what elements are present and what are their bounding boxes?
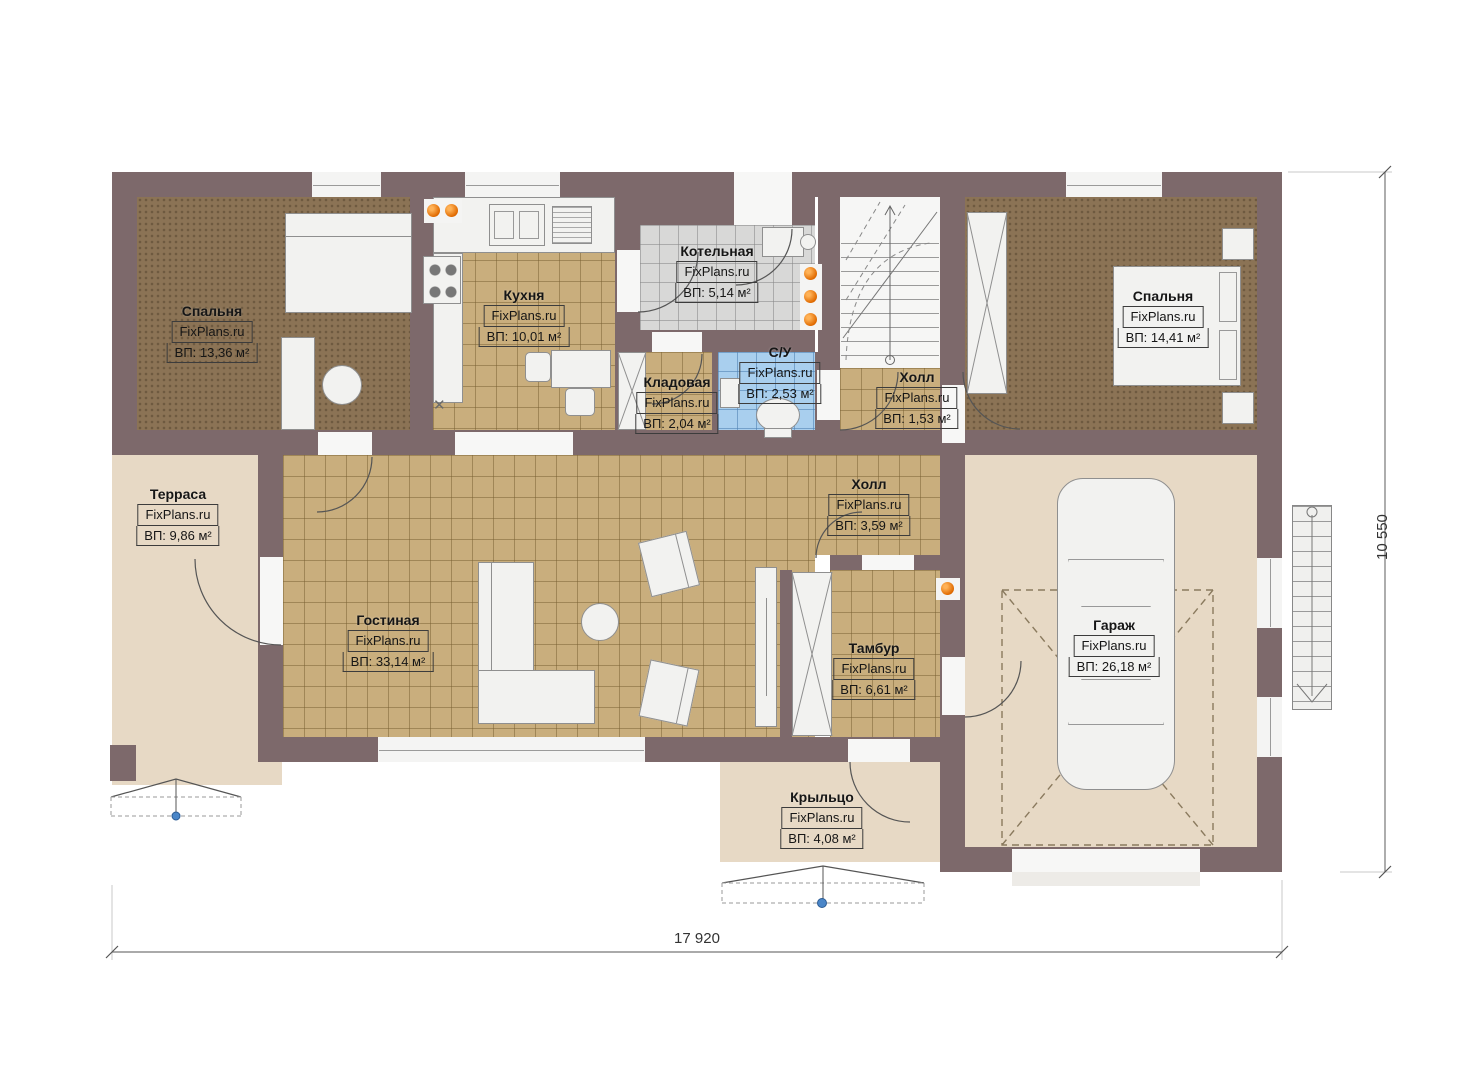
door-kitchen-boiler: [617, 250, 640, 312]
watermark: FixPlans.ru: [781, 807, 862, 829]
room-name: Холл: [899, 369, 934, 385]
room-area: ВП: 26,18 м²: [1069, 657, 1160, 678]
watermark: FixPlans.ru: [833, 658, 914, 680]
wall-vestibule-left: [780, 570, 792, 737]
window-living-bottom: [378, 737, 645, 762]
garage-apron: [1012, 872, 1200, 886]
floor-plan: ✕: [0, 0, 1474, 1080]
window-bedroom-right-top: [1066, 172, 1162, 197]
room-label-terrace: Терраса FixPlans.ru ВП: 9,86 м²: [136, 486, 219, 546]
room-area: ВП: 14,41 м²: [1118, 328, 1209, 349]
watermark: FixPlans.ru: [636, 392, 717, 414]
sofa-chaise: [478, 670, 595, 724]
window-garage-right-1: [1257, 558, 1282, 628]
car-windshield: [1068, 559, 1164, 607]
window-garage-right-2: [1257, 697, 1282, 757]
room-name: Котельная: [680, 243, 753, 259]
radiator-icon: [800, 264, 822, 330]
room-label-kitchen: Кухня FixPlans.ru ВП: 10,01 м²: [479, 287, 570, 347]
door-bedroom-left-living: [318, 432, 372, 455]
boiler-unit: [762, 227, 804, 257]
watermark: FixPlans.ru: [876, 387, 957, 409]
room-name: Гараж: [1093, 617, 1135, 633]
room-label-garage: Гараж FixPlans.ru ВП: 26,18 м²: [1069, 617, 1160, 677]
toilet-tank: [764, 428, 792, 438]
door-hall-vestibule: [862, 555, 914, 570]
room-label-hall-stairs: Холл FixPlans.ru ВП: 1,53 м²: [875, 369, 958, 429]
room-label-porch: Крыльцо FixPlans.ru ВП: 4,08 м²: [780, 789, 863, 849]
wall-left: [112, 197, 137, 455]
door-terrace: [260, 557, 283, 645]
exterior-stair: [1292, 505, 1332, 710]
porch-marker: [818, 899, 827, 908]
kitchen-chair-2: [565, 388, 595, 416]
door-vestibule-garage: [942, 657, 965, 715]
tv-console: [755, 567, 777, 727]
dimension-width: 17 920: [674, 930, 720, 947]
radiator-icon: [424, 199, 462, 223]
stove: [423, 256, 461, 304]
terrace-post: [110, 745, 136, 781]
kitchen-sink: [489, 204, 545, 246]
desk: [281, 337, 315, 430]
room-name: Тамбур: [849, 640, 900, 656]
watermark: FixPlans.ru: [347, 630, 428, 652]
room-name: С/У: [769, 344, 792, 360]
terrace-canopy-dashed: [111, 797, 241, 816]
nightstand-top: [1222, 228, 1254, 260]
room-label-boiler: Котельная FixPlans.ru ВП: 5,14 м²: [675, 243, 758, 303]
window-bedroom-left-top: [312, 172, 381, 197]
room-name: Гостиная: [356, 612, 419, 628]
dish-rack: [552, 206, 592, 244]
room-name: Терраса: [150, 486, 206, 502]
passage-kitchen-living: [455, 432, 573, 455]
room-area: ВП: 5,14 м²: [675, 283, 758, 304]
watermark: FixPlans.ru: [171, 321, 252, 343]
room-area: ВП: 3,59 м²: [827, 516, 910, 537]
watermark: FixPlans.ru: [739, 362, 820, 384]
door-boiler-exterior: [734, 172, 792, 225]
room-name: Спальня: [1133, 288, 1193, 304]
room-area: ВП: 2,53 м²: [738, 384, 821, 405]
terrace-marker: [172, 812, 180, 820]
room-label-pantry: Кладовая FixPlans.ru ВП: 2,04 м²: [635, 374, 718, 434]
watermark: FixPlans.ru: [483, 305, 564, 327]
watermark: FixPlans.ru: [676, 261, 757, 283]
room-area: ВП: 2,04 м²: [635, 414, 718, 435]
room-area: ВП: 9,86 м²: [136, 526, 219, 547]
car-rear-window: [1068, 679, 1164, 725]
door-pantry: [652, 332, 702, 352]
room-area: ВП: 6,61 м²: [832, 680, 915, 701]
room-name: Кладовая: [643, 374, 710, 390]
kitchen-chair-1: [525, 352, 551, 382]
watermark: FixPlans.ru: [828, 494, 909, 516]
room-label-bathroom: С/У FixPlans.ru ВП: 2,53 м²: [738, 344, 821, 404]
porch-canopy-dashed: [722, 883, 924, 903]
kitchen-table: [551, 350, 611, 388]
watermark: FixPlans.ru: [1122, 306, 1203, 328]
wardrobe-bedroom-right: [967, 212, 1007, 394]
dimension-height: 10 550: [1374, 514, 1391, 560]
floor-drain-mark: ✕: [433, 398, 446, 413]
boiler-pump: [800, 234, 816, 250]
room-area: ВП: 13,36 м²: [167, 343, 258, 364]
staircase-steps: [841, 243, 939, 368]
room-area: ВП: 1,53 м²: [875, 409, 958, 430]
room-area: ВП: 10,01 м²: [479, 327, 570, 348]
room-label-living: Гостиная FixPlans.ru ВП: 33,14 м²: [343, 612, 434, 672]
desk-chair: [322, 365, 362, 405]
room-label-vestibule: Тамбур FixPlans.ru ВП: 6,61 м²: [832, 640, 915, 700]
room-label-bedroom-left: Спальня FixPlans.ru ВП: 13,36 м²: [167, 303, 258, 363]
dimension-tick: [106, 946, 1288, 958]
window-kitchen-top: [465, 172, 560, 197]
room-label-bedroom-right: Спальня FixPlans.ru ВП: 14,41 м²: [1118, 288, 1209, 348]
room-label-hall: Холл FixPlans.ru ВП: 3,59 м²: [827, 476, 910, 536]
room-name: Спальня: [182, 303, 242, 319]
porch-canopy: [722, 866, 924, 883]
wall-stairs-right: [940, 197, 965, 368]
room-area: ВП: 4,08 м²: [780, 829, 863, 850]
door-vestibule-porch: [848, 739, 910, 762]
wall-bedroom2-garage: [965, 430, 1257, 455]
room-area: ВП: 33,14 м²: [343, 652, 434, 673]
radiator-icon: [936, 578, 960, 600]
nightstand-bottom: [1222, 392, 1254, 424]
room-name: Крыльцо: [790, 789, 854, 805]
bed-left: [285, 213, 412, 313]
bathroom-sink: [720, 378, 740, 408]
wall-right: [1257, 172, 1282, 872]
wall-bedroom-kitchen: [410, 197, 433, 430]
room-name: Кухня: [504, 287, 545, 303]
room-name: Холл: [851, 476, 886, 492]
coffee-table: [581, 603, 619, 641]
watermark: FixPlans.ru: [137, 504, 218, 526]
watermark: FixPlans.ru: [1073, 635, 1154, 657]
wardrobe-vestibule: [792, 572, 832, 736]
garage-gate: [1012, 849, 1200, 872]
